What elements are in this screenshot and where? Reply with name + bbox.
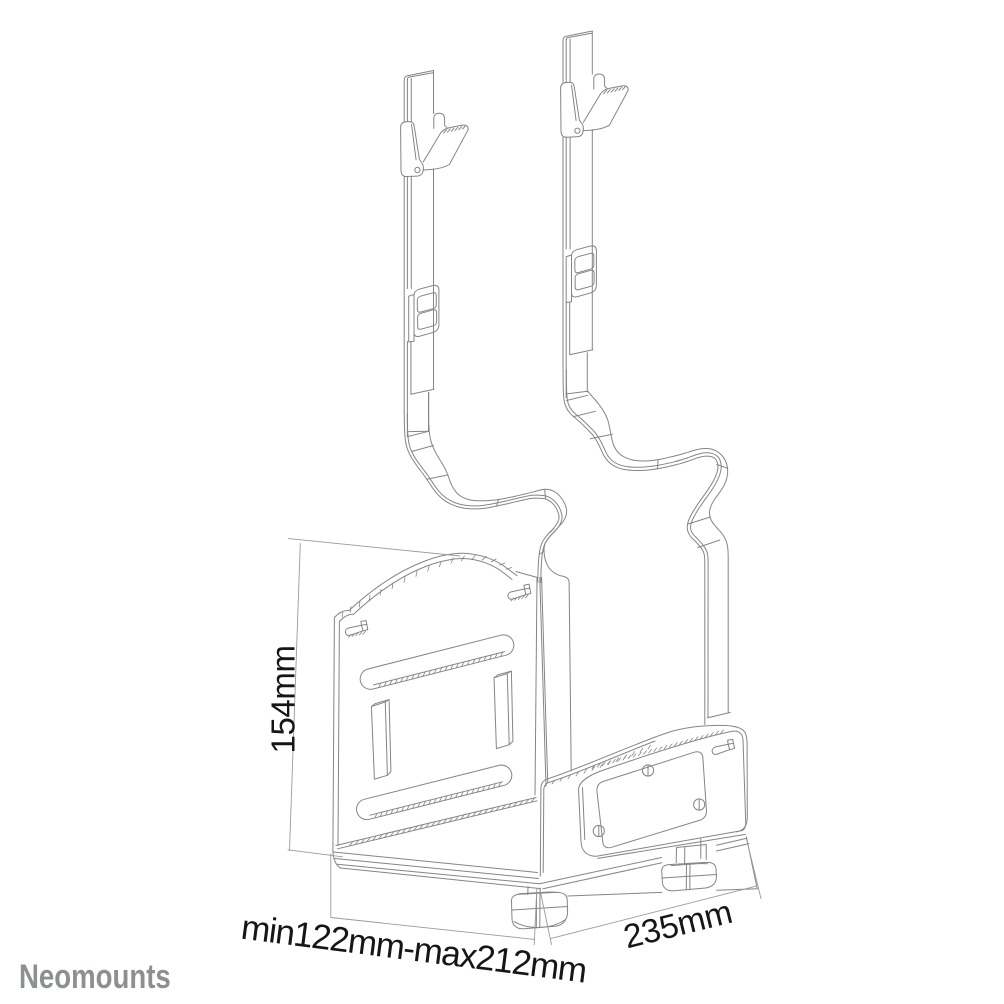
svg-text:154mm: 154mm <box>265 645 302 753</box>
svg-text:235mm: 235mm <box>620 894 736 956</box>
svg-text:Neomounts: Neomounts <box>19 957 171 996</box>
